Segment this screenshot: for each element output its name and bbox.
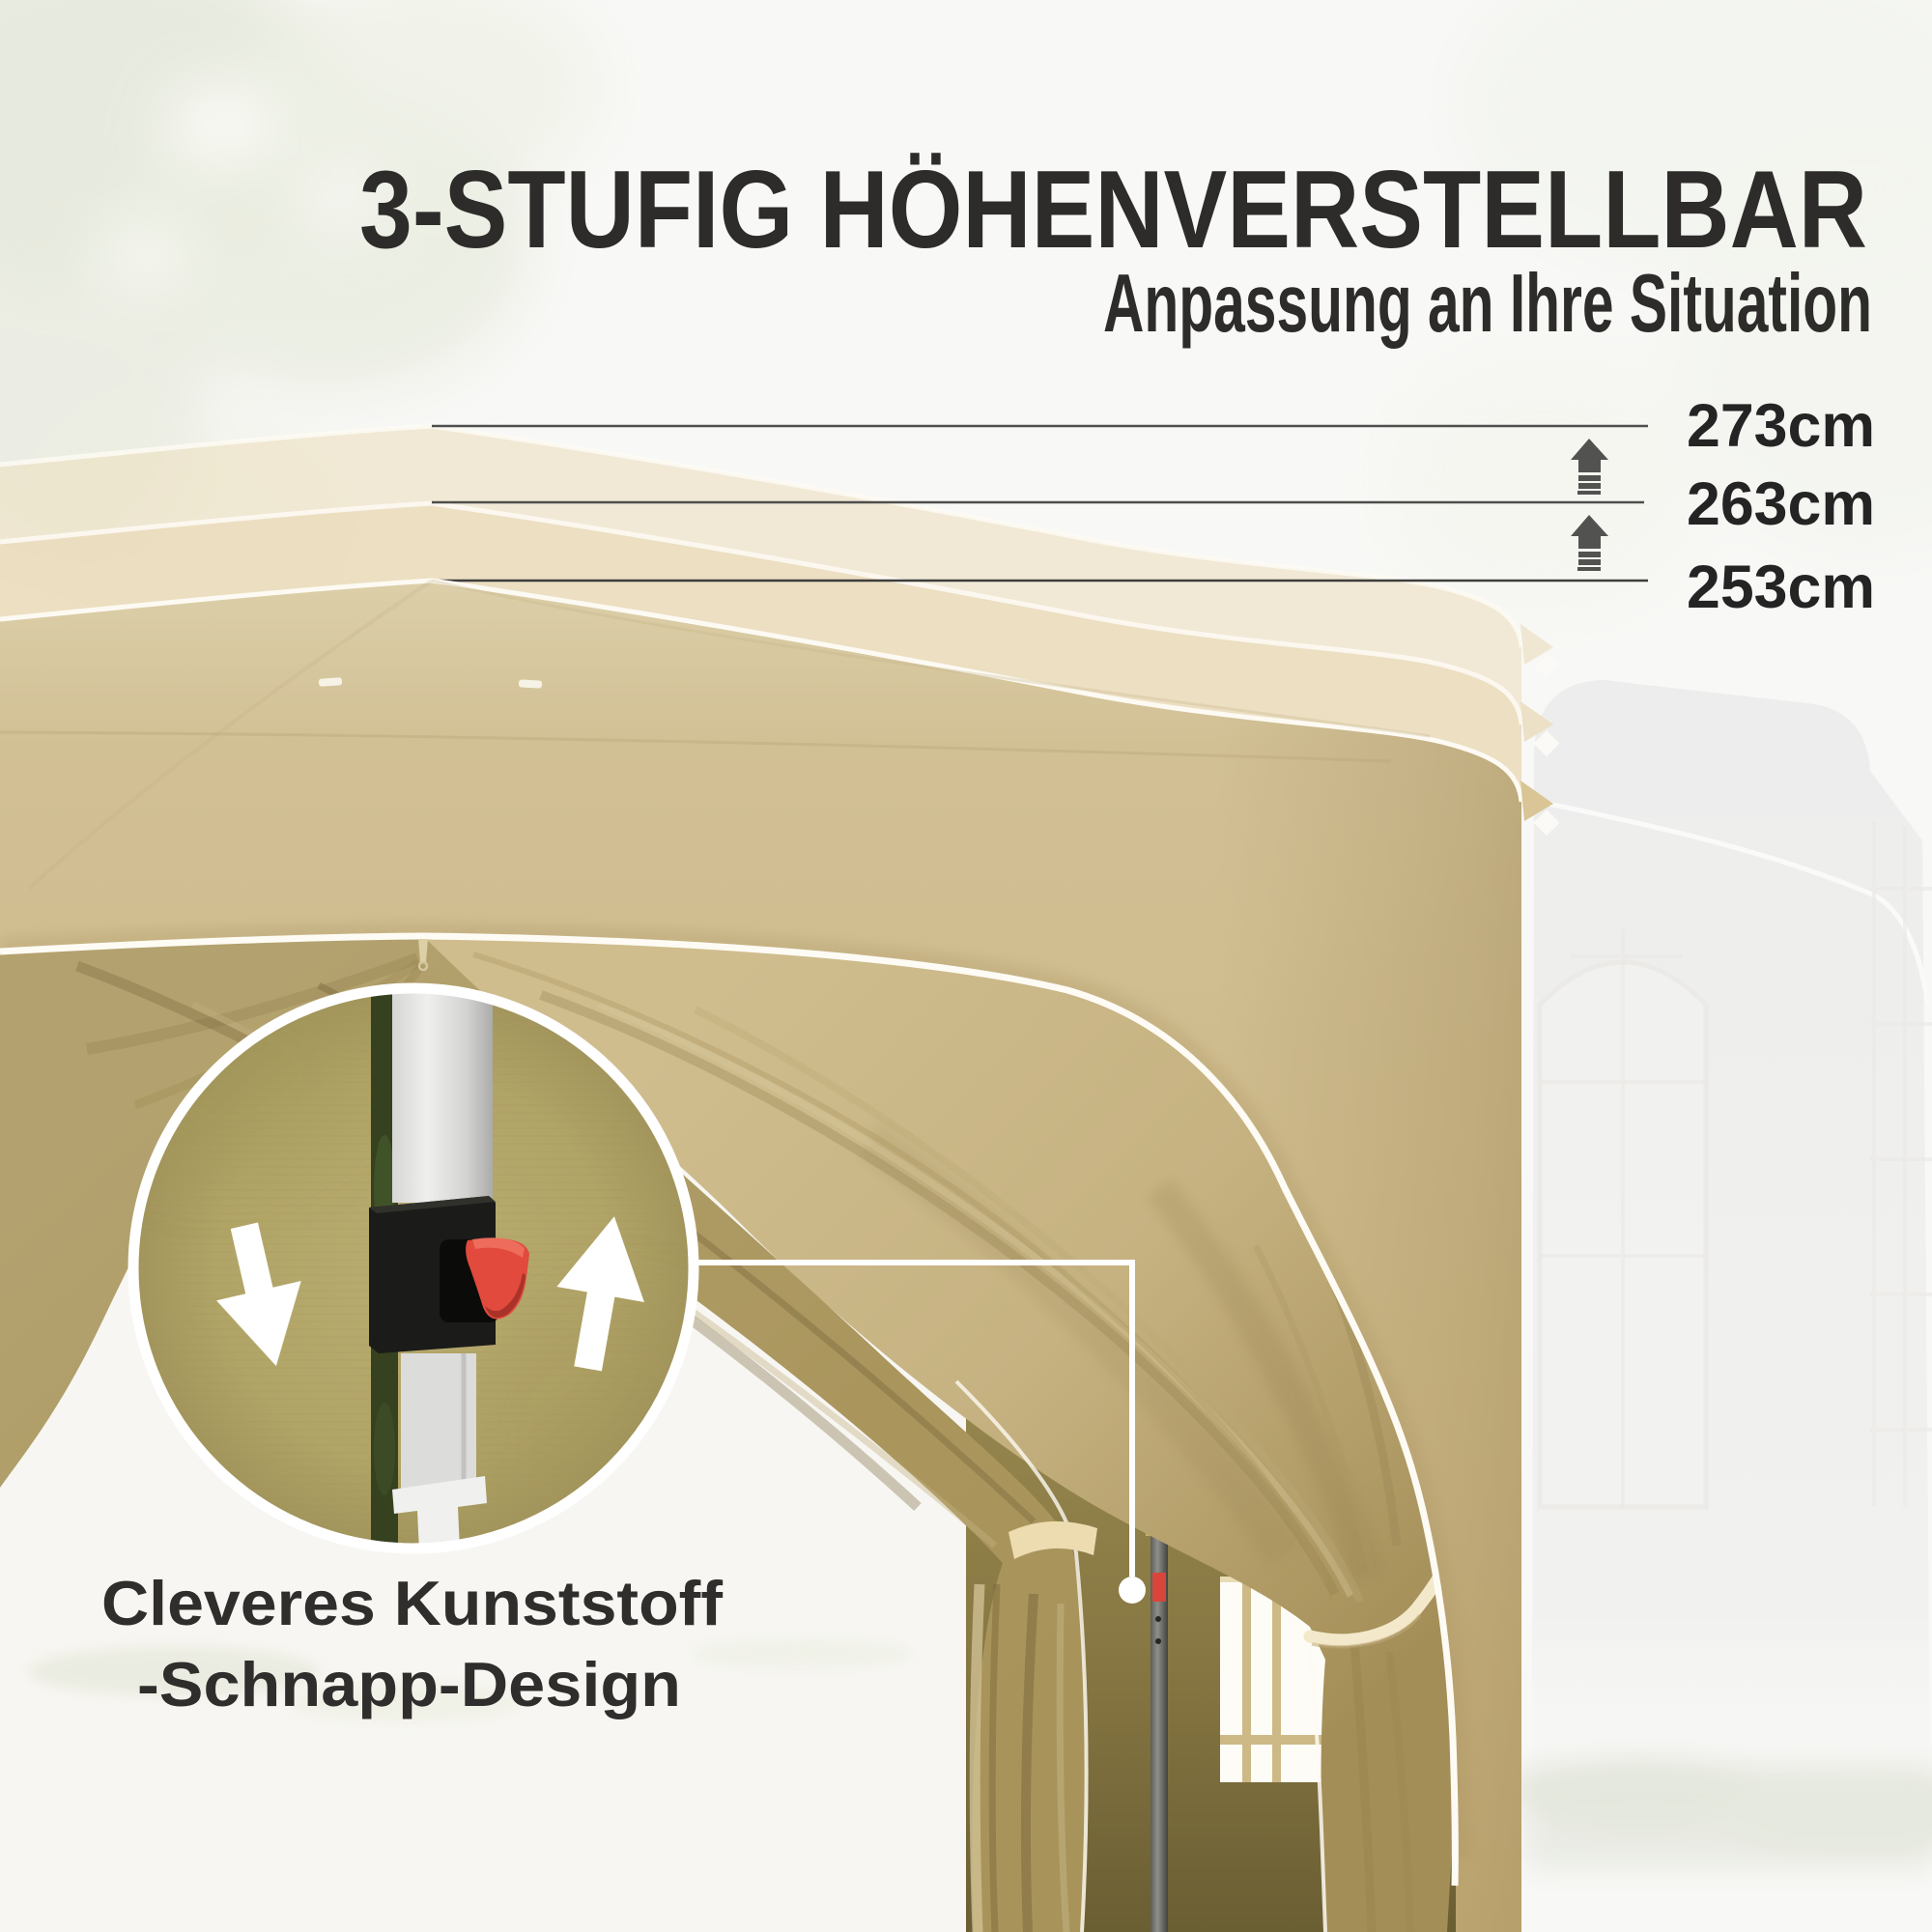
svg-text:3-STUFIG HÖHENVERSTELLBAR: 3-STUFIG HÖHENVERSTELLBAR — [359, 149, 1867, 271]
svg-text:253cm: 253cm — [1687, 554, 1875, 621]
svg-text:Cleveres Kunststoff: Cleveres Kunststoff — [101, 1568, 723, 1638]
svg-text:263cm: 263cm — [1687, 470, 1875, 538]
svg-text:-Schnapp-Design: -Schnapp-Design — [137, 1649, 681, 1719]
svg-text:Anpassung an Ihre Situation: Anpassung an Ihre Situation — [1103, 258, 1872, 350]
svg-text:273cm: 273cm — [1687, 392, 1875, 460]
